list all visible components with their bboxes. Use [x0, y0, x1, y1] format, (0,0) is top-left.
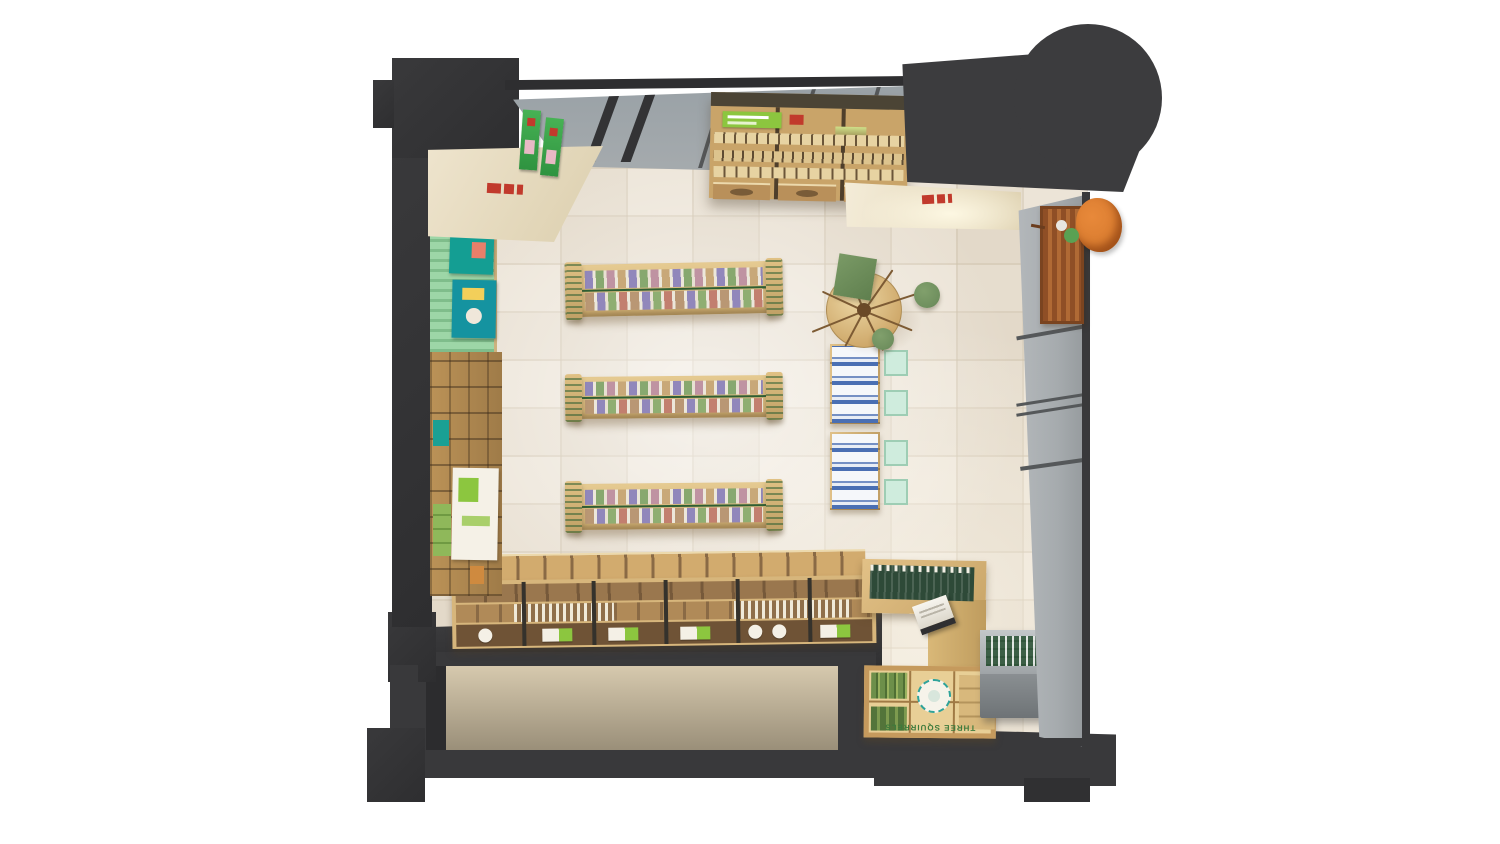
scoop-hole — [795, 190, 818, 198]
teal-chip — [433, 420, 449, 446]
green-banner-sign — [722, 111, 782, 128]
gondola-shelf-3 — [570, 482, 778, 530]
display-table-group — [810, 250, 960, 375]
gondola-products-bottom — [585, 289, 763, 310]
mint-bracket — [884, 390, 908, 416]
striped-stack-1 — [514, 603, 614, 622]
cashier-green-top — [870, 565, 975, 602]
gondola-shelf-2 — [570, 375, 778, 419]
shelf-product-row — [713, 166, 903, 181]
orange-chip — [470, 566, 484, 584]
red-tag-sign — [790, 115, 804, 125]
poster-red-mark — [527, 118, 536, 127]
scoop-hole — [730, 188, 753, 196]
white-poster — [451, 468, 499, 561]
tray-sign-text: THREE SQUIRRELS — [869, 722, 991, 732]
white-ball — [1056, 220, 1067, 231]
wall-tab-top-left — [373, 80, 394, 128]
poster-red-mark — [549, 128, 558, 137]
wall-block-top-left — [392, 58, 519, 158]
scoop-drawer — [778, 183, 836, 201]
glass-base-strip — [1030, 738, 1090, 746]
poster-art — [462, 288, 484, 300]
canopy-square-green — [833, 253, 877, 300]
lower-room-floor — [446, 666, 838, 750]
logo-glyph — [487, 182, 502, 193]
card-sign-lines — [919, 602, 946, 618]
tray-plate — [917, 679, 951, 713]
tray-green-packs — [871, 672, 907, 698]
red-logo-left — [487, 179, 530, 198]
gondola-products-top — [585, 488, 763, 505]
gondola-endcap-left — [565, 481, 583, 533]
poster-photo-spot — [545, 149, 556, 164]
round-label — [748, 625, 762, 639]
foot-right — [1024, 778, 1090, 802]
foot-left — [367, 728, 425, 802]
roof-edge — [505, 76, 910, 90]
poster-art — [471, 242, 486, 258]
card-label — [820, 624, 850, 637]
skylight-doorframe — [621, 94, 656, 162]
canopy-circle — [1014, 24, 1162, 172]
banner-text-line — [727, 121, 757, 125]
gondola-products-bottom — [585, 507, 763, 524]
branch-knot — [857, 303, 871, 317]
gondola-endcap-right — [766, 372, 784, 420]
card-label — [680, 626, 710, 639]
bottom-counter — [451, 549, 877, 673]
blue-packets — [832, 434, 878, 509]
stool-green — [872, 328, 894, 350]
logo-glyph — [937, 194, 945, 203]
blue-rack-2 — [830, 432, 908, 510]
wall-left-strip — [392, 152, 432, 627]
red-logo-right — [922, 189, 973, 208]
shelf-top-band — [711, 92, 909, 110]
gondola-products-top — [585, 380, 763, 396]
shelf-product-row — [714, 132, 904, 147]
stool-green — [914, 282, 940, 308]
round-label — [478, 628, 492, 642]
banner-text-line — [727, 115, 769, 119]
logo-glyph — [517, 184, 524, 194]
striped-stack-2 — [734, 599, 852, 619]
gondola-endcap-right — [765, 258, 783, 316]
mint-bracket — [884, 440, 908, 466]
counter-divider — [592, 581, 597, 645]
logo-glyph — [504, 183, 515, 194]
gondola-endcap-right — [766, 479, 784, 531]
card-label — [608, 627, 638, 640]
round-label — [772, 624, 786, 638]
gondola-products-top — [585, 267, 763, 288]
counter-slab — [452, 575, 877, 649]
gondola-endcap-left — [564, 262, 582, 320]
left-shelf-stack — [430, 352, 502, 596]
green-box-stack — [433, 504, 451, 556]
store-render-canvas: { "scene": { "description": "Top-down 3D… — [0, 0, 1500, 844]
poster-green-bar — [458, 478, 478, 502]
poster-photo-spot — [524, 140, 535, 155]
card-label — [542, 628, 572, 641]
gondola-endcap-left — [565, 374, 583, 422]
mint-bracket — [884, 479, 908, 505]
plate-center — [928, 690, 940, 702]
tray-display: THREE SQUIRRELS — [864, 665, 997, 738]
logo-glyph — [948, 193, 952, 202]
green-ball — [1064, 228, 1079, 243]
scoop-drawer — [713, 182, 771, 200]
poster-art — [466, 308, 482, 324]
shelf-product-row — [714, 150, 904, 165]
logo-glyph — [922, 194, 934, 204]
poster-green-bar — [462, 516, 490, 526]
teal-poster — [451, 280, 496, 339]
gondola-shelf-1 — [569, 261, 778, 317]
orange-beanbag-chair — [1076, 198, 1122, 252]
gondola-products-bottom — [585, 398, 763, 414]
